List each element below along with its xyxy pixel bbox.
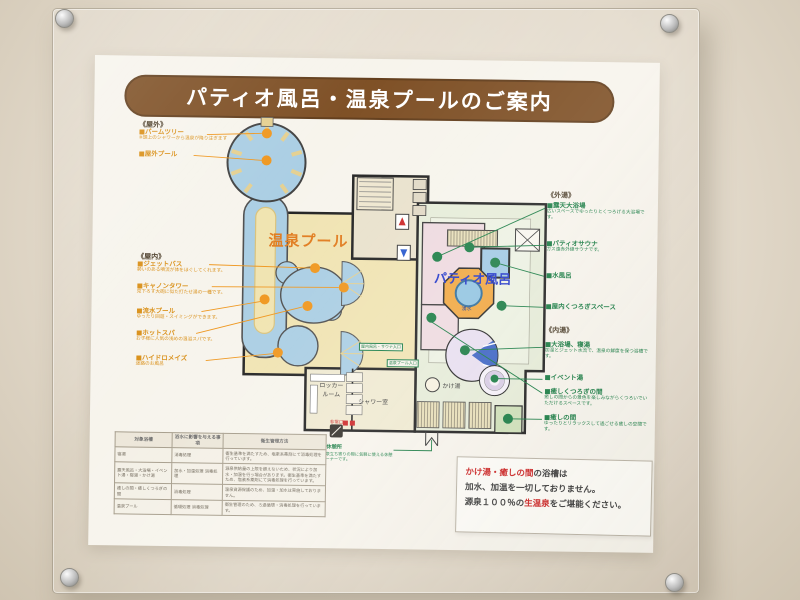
- acrylic-panel: [52, 8, 700, 594]
- standoff-peg: [665, 573, 684, 592]
- standoff-peg: [660, 14, 679, 33]
- standoff-peg: [60, 568, 79, 587]
- photo-of-wall-sign: { "title": "パティオ風呂・温泉プールのご案内", "legend":…: [0, 0, 800, 600]
- standoff-peg: [55, 9, 74, 28]
